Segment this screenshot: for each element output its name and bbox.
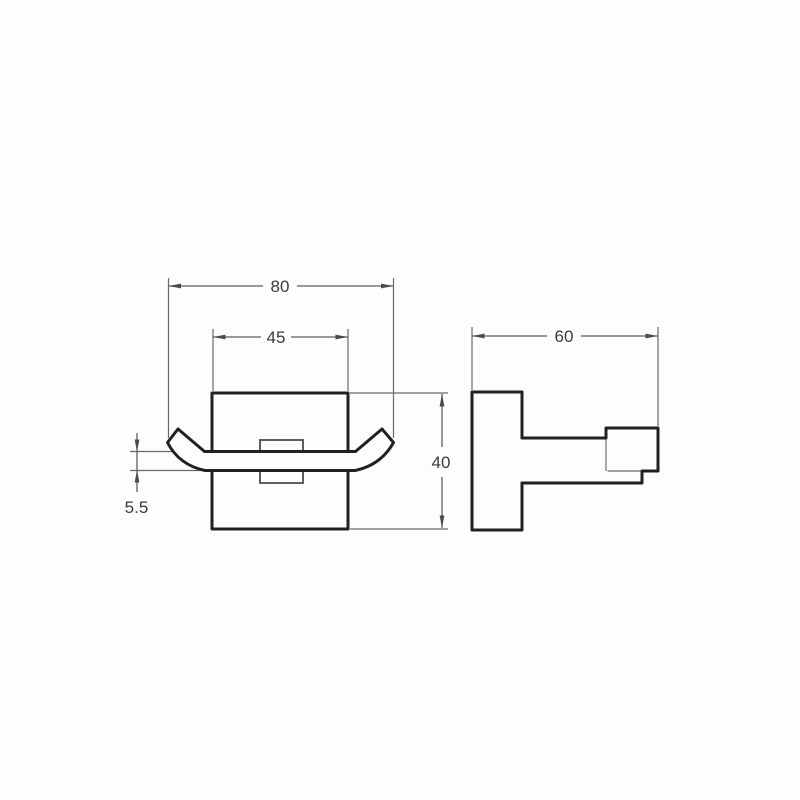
arrowhead-right: [381, 284, 394, 289]
front-view: 80 45 40: [125, 277, 451, 529]
dim-label-plate-width: 45: [267, 328, 286, 347]
drawing-canvas: 80 45 40: [0, 0, 800, 800]
arrowhead-left: [213, 335, 226, 340]
arrowhead-top: [440, 394, 445, 407]
dim-label-plate-height: 40: [432, 453, 451, 472]
arrowhead-left: [169, 284, 182, 289]
dim-label-overall-width: 80: [271, 277, 290, 296]
backplate-side: [472, 392, 522, 530]
technical-drawing: 80 45 40: [0, 0, 800, 800]
arrowhead-bottom: [440, 516, 445, 529]
arrowhead-right: [336, 335, 349, 340]
side-view: 60: [472, 327, 658, 530]
dimension-plate-width: 45: [213, 328, 348, 391]
dim-label-hook-thickness: 5.5: [125, 498, 149, 517]
arrowhead-down: [135, 440, 140, 452]
arrowhead-up: [135, 471, 140, 483]
arrowhead-left: [472, 334, 485, 339]
hook-arm-side: [522, 428, 658, 483]
dim-label-depth: 60: [555, 327, 574, 346]
arrowhead-right: [646, 334, 659, 339]
